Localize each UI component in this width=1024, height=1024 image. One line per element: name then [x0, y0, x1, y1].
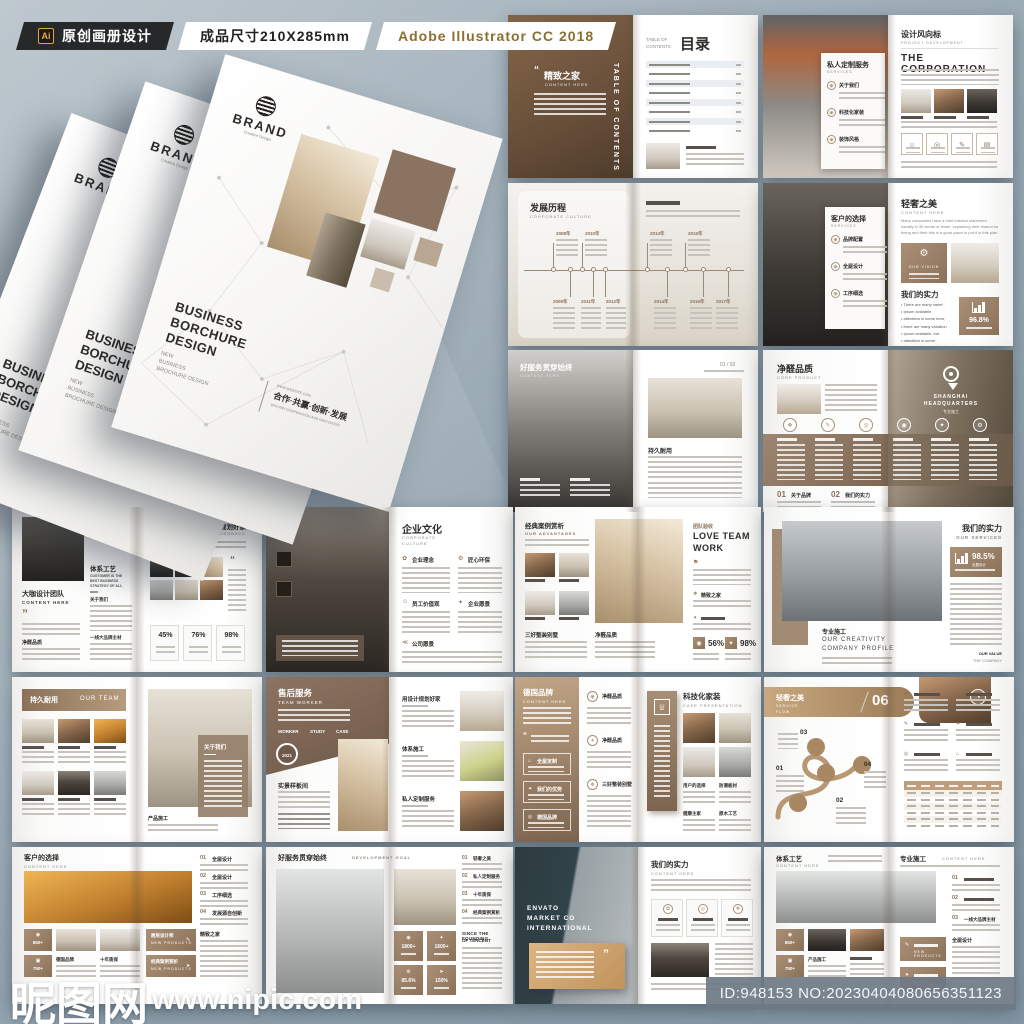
- toc-left-sub: CONTENT HERE: [545, 82, 588, 87]
- services-caption-en1: OUR CREATIVITY: [822, 637, 886, 643]
- caption-bar: [893, 438, 913, 441]
- text-placeholder: [931, 444, 959, 480]
- text-placeholder: [228, 569, 246, 613]
- core-sub: CORE PRODUCT: [777, 375, 821, 380]
- quote-icon: “: [534, 65, 539, 76]
- panel-title: 客户的选择: [831, 214, 879, 224]
- text-placeholder: [22, 751, 54, 763]
- text-placeholder: [725, 653, 751, 661]
- badge-original-design: Ai 原创画册设计: [16, 22, 174, 50]
- choice-caption: 十年质保: [100, 957, 118, 963]
- lux-photo-bedroom: [951, 243, 999, 283]
- services-title: 我们的实力: [914, 523, 1002, 534]
- feature-box: ▤: [976, 133, 998, 155]
- dot-icon: ◉: [827, 135, 836, 144]
- choice-title: 客户的选择: [24, 853, 59, 863]
- after-badge: 2021: [276, 743, 298, 765]
- text-placeholder: [458, 567, 502, 593]
- team-sub: CONTENT HERE: [22, 600, 70, 605]
- text-placeholder: [520, 484, 560, 496]
- case-photo: [525, 553, 555, 577]
- flag-icon: ⚑: [693, 559, 698, 566]
- feature-box: ◎: [926, 133, 948, 155]
- box-label: 经典案例赏析: [151, 959, 178, 965]
- bullet-item: alteration in some form,: [901, 315, 955, 322]
- caption-bar: [815, 438, 835, 441]
- text-placeholder: [278, 813, 330, 829]
- text-placeholder: [534, 93, 606, 117]
- timeline-sub: CORPORATE CULTURE: [530, 214, 592, 219]
- text-placeholder: [402, 651, 502, 663]
- durable-caption: 产品施工: [148, 815, 168, 822]
- toc-row: [646, 118, 744, 125]
- spread-goal: 好服务贯穿始终 DEVELOPMENT GOAL ◉1800+ ✦1600+ ⚙…: [266, 847, 513, 1004]
- craft-right-block-title: 全屋设计: [952, 937, 972, 944]
- goal-item-label: 私人定制服务: [473, 874, 500, 880]
- target-icon: ◎: [698, 904, 708, 914]
- toc-row: [646, 71, 744, 78]
- panel-item: ◉关于我们: [827, 81, 879, 90]
- sub-bar: [402, 755, 428, 757]
- culture-sub2: CULTURE: [402, 541, 428, 546]
- text-placeholder: [966, 327, 992, 332]
- german-caption: 防潮板材: [719, 783, 737, 789]
- text-placeholder: [458, 611, 502, 633]
- star-icon: ✦: [587, 735, 598, 746]
- gear-icon: ⚙: [956, 691, 960, 697]
- diamond-icon: ❖: [693, 591, 697, 597]
- star-icon: ✦: [528, 786, 532, 792]
- text-placeholder: [606, 307, 626, 329]
- text-placeholder: [94, 751, 126, 763]
- dot-icon: ◉: [831, 289, 840, 298]
- envato-line3: INTERNATIONAL: [527, 925, 593, 932]
- caption-bar: [525, 617, 545, 620]
- pen-icon: ✎: [821, 418, 835, 432]
- goal-photo: [394, 869, 456, 925]
- text-placeholder: [828, 855, 882, 865]
- after-tab2: STUDY: [310, 729, 325, 734]
- timeline-stem: [605, 271, 606, 297]
- share-icon: ≪: [402, 639, 408, 646]
- text-placeholder: [956, 729, 1000, 743]
- text-placeholder: [715, 943, 753, 977]
- culture-caption-box: [276, 635, 364, 661]
- timeline-year: 2011年: [581, 299, 595, 305]
- wall-frame: [276, 581, 292, 597]
- dot-icon: ◉: [587, 691, 598, 702]
- pen-icon: ✎: [904, 721, 908, 727]
- panel-item: ◉装饰风格: [827, 135, 879, 144]
- dot-icon: ◉: [897, 418, 911, 432]
- panel-title: 私人定制服务: [827, 60, 879, 70]
- team-mid-item2: 一线大品牌主材: [90, 635, 122, 641]
- caption-bar: [931, 438, 951, 441]
- text-placeholder: [650, 239, 672, 259]
- german-sub: CONTENT HERE: [523, 699, 566, 704]
- timeline-stem: [667, 271, 668, 297]
- caption-bar: [914, 693, 940, 696]
- badge-size: 成品尺寸210X285mm: [178, 22, 372, 50]
- brand-globe-icon: [254, 94, 279, 119]
- kitchen-title: 好服务贯穿始终: [520, 362, 573, 373]
- text-placeholder: [189, 646, 208, 656]
- text-placeholder: [556, 239, 578, 259]
- text-placeholder: [777, 444, 805, 480]
- location-pin-icon: [943, 366, 959, 382]
- bullet-item: There are many variet: [901, 301, 955, 308]
- culture-item-label: 企业理念: [412, 556, 434, 564]
- image-id-label: ID:948153 NO:20230404080656351123: [706, 977, 1016, 1010]
- core-item1-number: 01: [777, 490, 786, 499]
- timeline-stem: [582, 243, 583, 269]
- services-footer2: THE COMPANY: [950, 658, 1002, 663]
- case-photo: [559, 591, 589, 615]
- trophy-icon: ♕: [654, 699, 670, 715]
- caption-bar: [686, 146, 716, 149]
- after-left-item: 实景样板间: [278, 781, 308, 790]
- culture-sub1: CORPORATE: [402, 535, 436, 540]
- envato-right-sub: CONTENT HERE: [651, 871, 694, 876]
- envato-line2: MARKET CO: [527, 915, 575, 922]
- badge-software: Adobe Illustrator CC 2018: [376, 22, 616, 50]
- stat-value: 850+: [24, 940, 52, 945]
- text-placeholder: [278, 709, 350, 721]
- flow-step: 03: [800, 729, 807, 736]
- caption-bar: [850, 957, 872, 960]
- text-placeholder: [525, 641, 587, 661]
- after-item-label: 体系施工: [402, 745, 424, 753]
- german-trophy-box: ♕: [647, 691, 677, 811]
- timeline-year: 2014年: [654, 299, 669, 305]
- feature-box: ☺: [901, 133, 923, 155]
- panel-item: ◉全屋设计: [831, 262, 879, 271]
- home-icon: ⌂: [528, 758, 531, 764]
- diamond-icon: ❖: [904, 691, 908, 697]
- stat-value: 98%: [740, 639, 756, 648]
- timeline-stem: [703, 271, 704, 297]
- german-list-label: 净醛品质: [602, 737, 622, 744]
- craft-brown-box: ✎NEW PRODUCTS: [900, 937, 946, 961]
- caption-bar: [966, 723, 992, 726]
- text-placeholder: [808, 965, 846, 977]
- german-right-sub: CASE PRESENTATION: [683, 703, 743, 708]
- craft-item-no: 02: [952, 895, 958, 901]
- panel-item-label: 工序细选: [843, 290, 863, 297]
- german-photo: [719, 713, 751, 743]
- german-box: ◎德国品牌: [523, 809, 571, 831]
- quote-icon: “: [523, 731, 527, 740]
- text-placeholder: [955, 569, 995, 574]
- german-caption: 原木工艺: [719, 811, 737, 817]
- panel-item-label: 科技化家装: [839, 109, 864, 116]
- text-placeholder: [587, 795, 631, 829]
- header-bar: Ai 原创画册设计 成品尺寸210X285mm Adobe Illustrato…: [20, 22, 612, 50]
- arrow-icon: ➤: [427, 969, 456, 975]
- size-label: 成品尺寸210X285mm: [200, 26, 350, 46]
- panel-item-label: 关于我们: [839, 82, 859, 89]
- text-placeholder: [654, 725, 670, 797]
- cases-main-photo: [595, 519, 683, 623]
- flow-step: 02: [836, 797, 843, 804]
- text-placeholder: [693, 600, 751, 610]
- timeline-stem: [570, 271, 571, 297]
- craft-stat-box: ◉850+: [776, 929, 804, 951]
- text-placeholder: [401, 953, 416, 957]
- text-placeholder: [719, 791, 751, 805]
- timeline-node: [568, 267, 573, 272]
- quote-icon: “: [230, 555, 235, 566]
- goal-since2: OF TENCENT: [462, 938, 491, 943]
- stat-value: 56%: [708, 639, 724, 648]
- text-placeholder: [200, 940, 248, 952]
- text-placeholder: [156, 646, 175, 656]
- envato-right-title: 我们的实力: [651, 859, 689, 870]
- after-item-photo: [460, 791, 504, 831]
- caption-bar: [914, 723, 940, 726]
- craft-item-no: 03: [952, 915, 958, 921]
- text-placeholder: [462, 863, 502, 871]
- gear-icon: ⚙: [901, 248, 947, 259]
- text-placeholder: [648, 456, 742, 478]
- core-pin-sub: 专业施工: [921, 409, 981, 415]
- caption-bar: [853, 438, 873, 441]
- craft-main-photo: [776, 871, 936, 923]
- team-title: 大咖设计团队: [22, 589, 64, 599]
- stat-value: 850+: [776, 940, 804, 945]
- text-placeholder: [969, 444, 997, 480]
- services-caption-en2: COMPANY PROFILE: [822, 646, 894, 652]
- craft-caption: 产品施工: [808, 957, 826, 963]
- text-placeholder: [654, 307, 676, 329]
- panel-item-label: 装饰风格: [839, 136, 859, 143]
- team-small-label: 净醛品质: [22, 639, 42, 646]
- pen-icon: ✎: [905, 942, 909, 948]
- culture-title: 企业文化: [402, 521, 442, 536]
- caption-bar: [966, 693, 992, 696]
- cover-mockup: BRAND BUSINESS BORCHURE DESIGN NEW BUSIN…: [0, 66, 520, 546]
- caption-bar: [58, 798, 80, 801]
- text-placeholder: [523, 707, 571, 727]
- text-placeholder: [402, 810, 454, 830]
- german-right-title: 科技化家装: [683, 691, 721, 702]
- goal-item-label: 经典案例赏析: [473, 910, 500, 916]
- flow-table: [904, 781, 1002, 833]
- choice-item-label: 全屋设计: [212, 874, 232, 881]
- page-number: 01 / 02: [720, 362, 735, 368]
- craft-item-label: 一线大品牌主材: [964, 917, 996, 923]
- timeline-year: 2010年: [585, 231, 600, 237]
- core-title: 净醛品质: [777, 362, 813, 375]
- text-placeholder: [200, 864, 248, 872]
- culture-item-label: 匠心环保: [468, 556, 490, 564]
- choice-photo: [100, 929, 140, 951]
- lux-strength-title: 我们的实力: [901, 289, 939, 300]
- slash-divider: [860, 691, 868, 712]
- after-item-photo: [460, 741, 504, 781]
- toc-left-title: 精致之家: [544, 69, 580, 82]
- grid-photo: [58, 771, 90, 795]
- after-item-label: 私人定制服务: [402, 795, 435, 803]
- text-placeholder: [952, 884, 1000, 892]
- box-icon: ▣: [24, 958, 52, 964]
- after-item-photo: [460, 691, 504, 731]
- toc-title: 目录: [680, 33, 710, 54]
- grid-photo: [22, 719, 54, 743]
- diamond-icon: ❖: [733, 904, 743, 914]
- text-placeholder: [693, 569, 751, 585]
- core-item2-number: 02: [831, 490, 840, 499]
- text-placeholder: [22, 623, 80, 635]
- text-placeholder: [434, 953, 449, 957]
- spread-cases: 经典案例赏析 OUR ADVANTAGES 三好整装别墅 净醛品质 团队验收 L…: [515, 507, 761, 672]
- timeline-stem: [593, 271, 594, 297]
- dot-icon: ◉: [776, 932, 804, 938]
- lux-body: Many companies have a brief mission stat…: [901, 218, 999, 236]
- panel-sub: SERVICES: [827, 70, 879, 74]
- text-placeholder: [148, 824, 218, 834]
- text-placeholder: [587, 707, 631, 727]
- text-placeholder: [956, 759, 1000, 773]
- bullet-item: alteration in some .: [901, 337, 955, 344]
- dot-icon: ◉: [827, 108, 836, 117]
- text-placeholder: [778, 733, 798, 749]
- text-placeholder: [952, 946, 1000, 958]
- caption-bar: [967, 116, 989, 119]
- star-icon: ✦: [956, 721, 960, 727]
- star-icon: ✦: [935, 418, 949, 432]
- stat-value: 85.6%: [394, 978, 423, 984]
- caption-bar: [914, 753, 940, 756]
- german-title: 德国品牌: [523, 687, 553, 698]
- cases-right-en1: LOVE TEAM: [693, 531, 750, 541]
- lux-sub: CONTENT HERE: [901, 210, 944, 215]
- target-icon: ◎: [528, 814, 532, 820]
- choice-item-label: 全屋设计: [212, 856, 232, 863]
- stat-box: 96.8%: [959, 297, 999, 335]
- text-placeholder: [904, 759, 948, 773]
- adobe-illustrator-icon: Ai: [38, 28, 54, 44]
- text-placeholder: [648, 482, 742, 498]
- text-placeholder: [402, 760, 454, 780]
- craft-photo: [808, 929, 846, 951]
- choice-photo: [56, 929, 96, 951]
- toc-row: [646, 90, 744, 97]
- text-placeholder: [981, 147, 995, 153]
- stat-card: 98%: [216, 625, 245, 661]
- caption-bar: [520, 478, 540, 481]
- text-placeholder: [587, 751, 631, 771]
- caption-bar: [94, 798, 116, 801]
- text-placeholder: [719, 819, 751, 831]
- lux-title: 轻奢之美: [901, 197, 937, 210]
- text-placeholder: [956, 147, 970, 153]
- text-placeholder: [691, 924, 715, 934]
- goal-main-photo: [276, 869, 384, 993]
- flow-sub2: FLOW: [776, 710, 790, 714]
- text-placeholder: [278, 791, 330, 809]
- cases-right-en2: WORK: [693, 543, 724, 553]
- choice-item-label: 发展源自创新: [212, 910, 242, 917]
- right-heading-bar: [646, 201, 680, 205]
- text-placeholder: [683, 791, 715, 805]
- text-placeholder: [843, 273, 887, 282]
- cases-right-item: 精致之家: [701, 592, 721, 599]
- feedback-photo: [150, 580, 173, 600]
- stat-label: 全屋设计: [972, 563, 986, 568]
- star-icon: ✦: [725, 637, 737, 649]
- caption-bar: [969, 438, 989, 441]
- text-placeholder: [585, 239, 607, 259]
- goal-item-label: 轻奢之美: [473, 856, 491, 862]
- toc-label1: TABLE OF: [646, 37, 667, 42]
- envato-gold-card: ”: [529, 943, 625, 989]
- team-mid-sub: CUSTOMER IS THE BEST BUSINESS STRATEGY O…: [90, 574, 132, 589]
- home-icon: ⌂: [956, 751, 959, 757]
- text-placeholder: [704, 370, 744, 375]
- text-placeholder: [200, 918, 248, 926]
- text-placeholder: [716, 307, 738, 329]
- caption-bar: [934, 116, 956, 119]
- dot-icon: ◉: [24, 932, 52, 938]
- caption-bar: [966, 753, 992, 756]
- flow-number: 06: [872, 692, 889, 709]
- text-placeholder: [906, 147, 920, 153]
- text-placeholder: [901, 161, 997, 169]
- spread-flow: ◔ 轻奢之美 SERVICE FLOW 06 01 02 03 04 ❖ ⚙ ✎…: [764, 677, 1014, 842]
- text-placeholder: [690, 307, 712, 329]
- vision-box: ⚙ OUR VISION: [901, 243, 947, 283]
- after-tab3: CASE: [336, 729, 349, 734]
- timeline-year: 2008年: [556, 231, 571, 237]
- text-placeholder: [853, 444, 881, 480]
- box-icon: ▣: [776, 958, 804, 964]
- choice-item-no: 01: [200, 855, 206, 861]
- timeline-node: [591, 267, 596, 272]
- dot-icon: ◉: [827, 81, 836, 90]
- cases-title: 经典案例赏析: [525, 520, 564, 530]
- toc-row: [646, 128, 744, 135]
- envato-feature-box: ◎: [686, 899, 718, 937]
- caption-bar: [58, 746, 80, 749]
- text-placeholder: [693, 623, 751, 631]
- toc-row: [646, 61, 744, 68]
- craft-sub: CONTENT HERE: [776, 863, 819, 868]
- core-item1-label: 关于品牌: [791, 492, 811, 499]
- culture-item-label: 员工价值观: [412, 600, 440, 608]
- durable-banner: 持久耐用 OUR TEAM: [22, 689, 126, 711]
- timeline-node: [603, 267, 608, 272]
- goal-stat-box: ⚙85.6%: [394, 965, 423, 995]
- text-placeholder: [825, 384, 877, 414]
- toc-row: [646, 80, 744, 87]
- text-placeholder: [462, 917, 502, 925]
- text-placeholder: [839, 146, 885, 155]
- timeline-node: [551, 267, 556, 272]
- stat-value: 98.5%: [972, 552, 995, 561]
- software-label: Adobe Illustrator CC 2018: [398, 28, 594, 44]
- goal-item-no: 04: [462, 909, 468, 915]
- kitchen-sub: CONTENT HERE: [520, 374, 560, 378]
- choice-right-item: 精致之家: [200, 931, 220, 938]
- durable-card: 关于我们: [198, 735, 248, 817]
- quote-icon: ”: [603, 947, 609, 961]
- text-placeholder: [839, 119, 885, 128]
- site-url: www.nipic.com: [152, 984, 362, 1017]
- services-caption: 专业施工: [822, 627, 846, 636]
- lux-panel: 客户的选择 SERVICES ◉品牌配置 ◉全屋设计 ◉工序细选: [825, 207, 885, 329]
- goal-item-label: 十年质保: [473, 892, 491, 898]
